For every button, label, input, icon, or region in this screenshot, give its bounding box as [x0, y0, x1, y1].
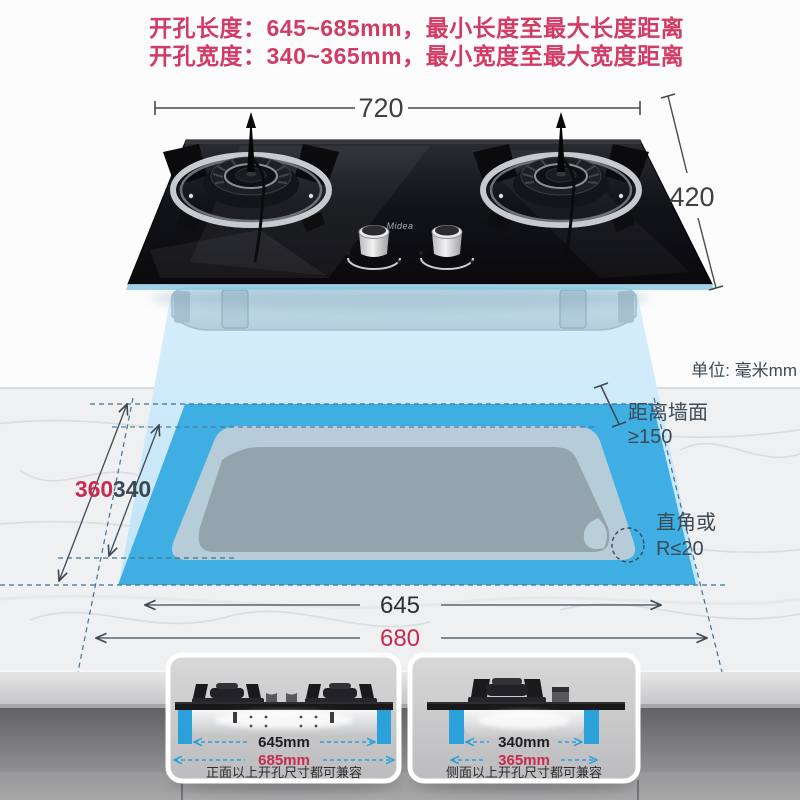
brand-logo: Midea	[386, 221, 413, 231]
wall-distance-value: ≥150	[628, 426, 672, 448]
header-line2: 开孔宽度：340~365mm，最小宽度至最大宽度距离	[149, 43, 684, 69]
wall-distance-label: 距离墙面	[628, 401, 708, 424]
front-dim-min-label: 645mm	[258, 734, 310, 751]
unit-label: 单位: 毫米mm	[691, 361, 797, 380]
dim-680-label: 680	[380, 625, 420, 652]
front-cutout-wall-left	[178, 710, 192, 744]
dim-645-label: 645	[380, 592, 420, 619]
corner-radius-value: R≤20	[656, 538, 704, 560]
front-caption: 正面以上开孔尺寸都可兼容	[206, 765, 362, 780]
front-section-glass-edge	[175, 702, 393, 704]
side-caption: 侧面以上开孔尺寸都可兼容	[446, 765, 602, 780]
diagram-svg: Midea 720 420 360 340 645 680 单位: 毫米mm	[0, 0, 800, 800]
cutout-hole	[199, 447, 610, 552]
installation-diagram: Midea 720 420 360 340 645 680 单位: 毫米mm	[0, 0, 800, 800]
side-section-glass-edge	[427, 702, 625, 704]
side-dim-min-label: 340mm	[498, 734, 550, 751]
side-cutout-wall-right	[584, 710, 599, 744]
front-section-belly	[192, 710, 377, 737]
dim-360-label: 360	[75, 476, 113, 502]
dim-420-label: 420	[669, 182, 714, 212]
corner-radius-label: 直角或	[656, 511, 716, 534]
front-section-panel: 645mm 685mm 正面以上开孔尺寸都可兼容	[168, 655, 399, 781]
side-cutout-wall-left	[449, 710, 464, 744]
dim-340-label: 340	[113, 476, 151, 502]
stove-illustration: Midea	[126, 112, 714, 330]
side-section-panel: 340mm 365mm 侧面以上开孔尺寸都可兼容	[410, 655, 638, 781]
header-line1: 开孔长度：645~685mm，最小长度至最大长度距离	[149, 15, 684, 41]
dim-720-label: 720	[358, 93, 403, 123]
front-cutout-wall-right	[377, 710, 391, 744]
